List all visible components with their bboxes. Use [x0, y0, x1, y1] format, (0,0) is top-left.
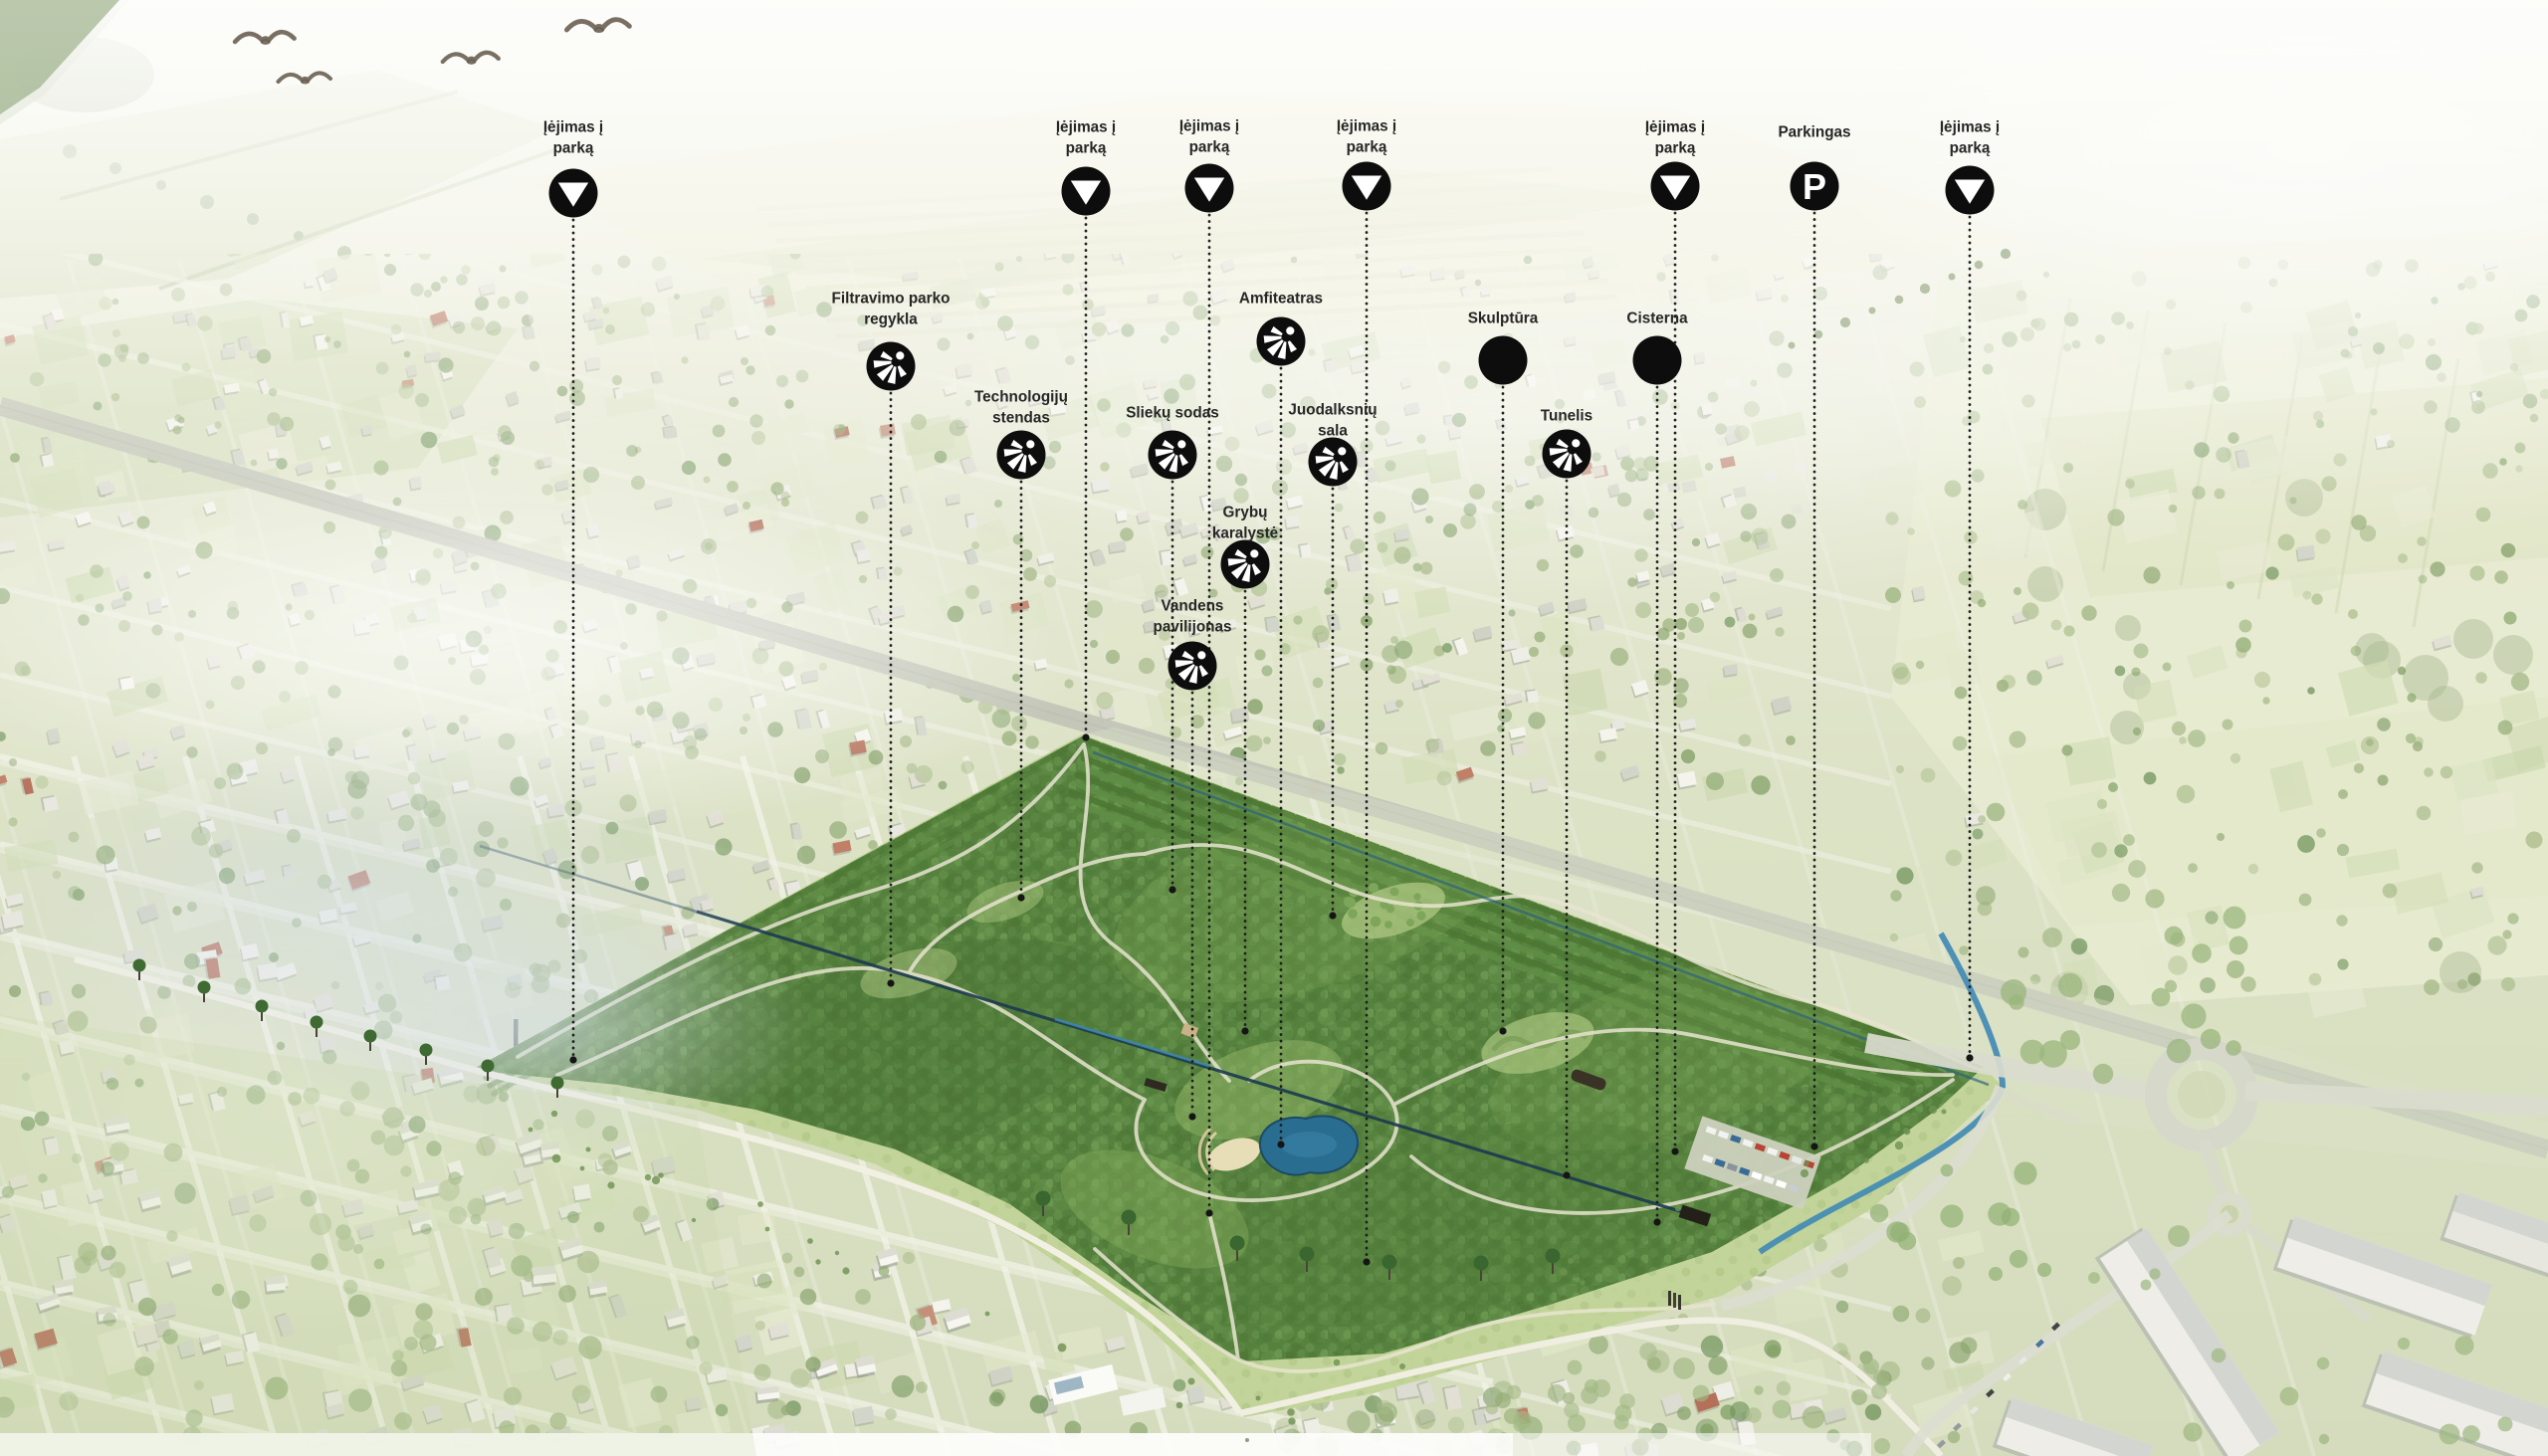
svg-text:Cisterna: Cisterna: [1626, 311, 1688, 327]
svg-text:Tunelis: Tunelis: [1541, 408, 1592, 425]
svg-text:P: P: [1803, 166, 1826, 207]
svg-text:Amfiteatras: Amfiteatras: [1239, 291, 1323, 308]
svg-text:Skulptūra: Skulptūra: [1468, 311, 1539, 327]
svg-text:Sliekų sodas: Sliekų sodas: [1126, 405, 1219, 422]
svg-text:Parkingas: Parkingas: [1778, 124, 1850, 141]
